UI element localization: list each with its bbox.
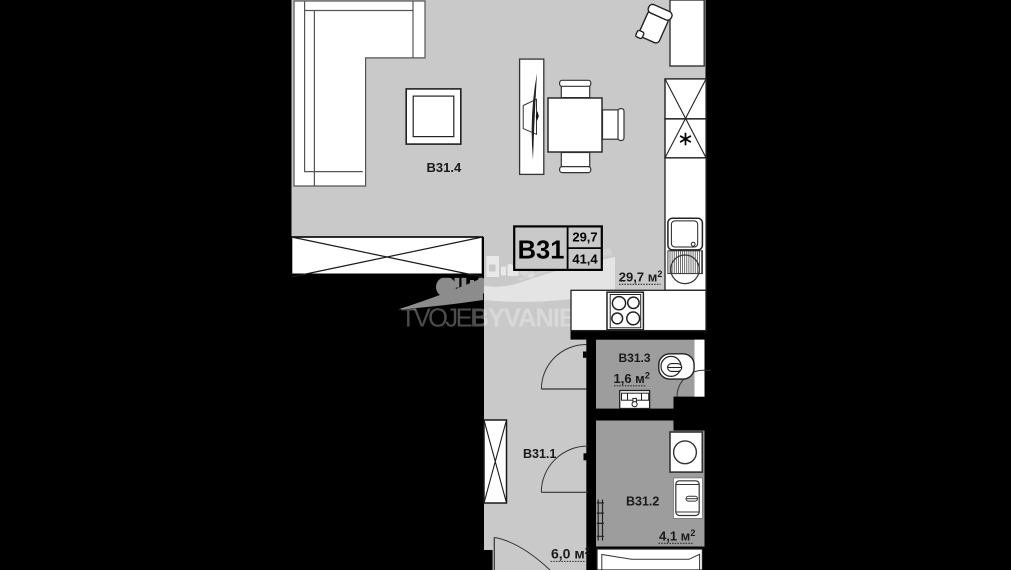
svg-text:B31.3: B31.3 — [618, 351, 650, 365]
svg-text:B31: B31 — [518, 237, 565, 265]
svg-text:BYVANIE: BYVANIE — [471, 305, 576, 333]
svg-text:1,6 м2: 1,6 м2 — [614, 370, 650, 386]
svg-text:29,7: 29,7 — [572, 230, 597, 245]
svg-text:6,0 м2: 6,0 м2 — [551, 546, 590, 562]
svg-text:B31.4: B31.4 — [427, 160, 462, 175]
svg-text:B31.2: B31.2 — [626, 494, 659, 508]
svg-text:B31.1: B31.1 — [523, 447, 556, 461]
svg-text:41,4: 41,4 — [572, 252, 598, 267]
svg-text:TVOJE: TVOJE — [401, 305, 472, 333]
svg-text:29,7 м2: 29,7 м2 — [619, 269, 663, 285]
svg-text:4,1 м2: 4,1 м2 — [659, 528, 695, 544]
